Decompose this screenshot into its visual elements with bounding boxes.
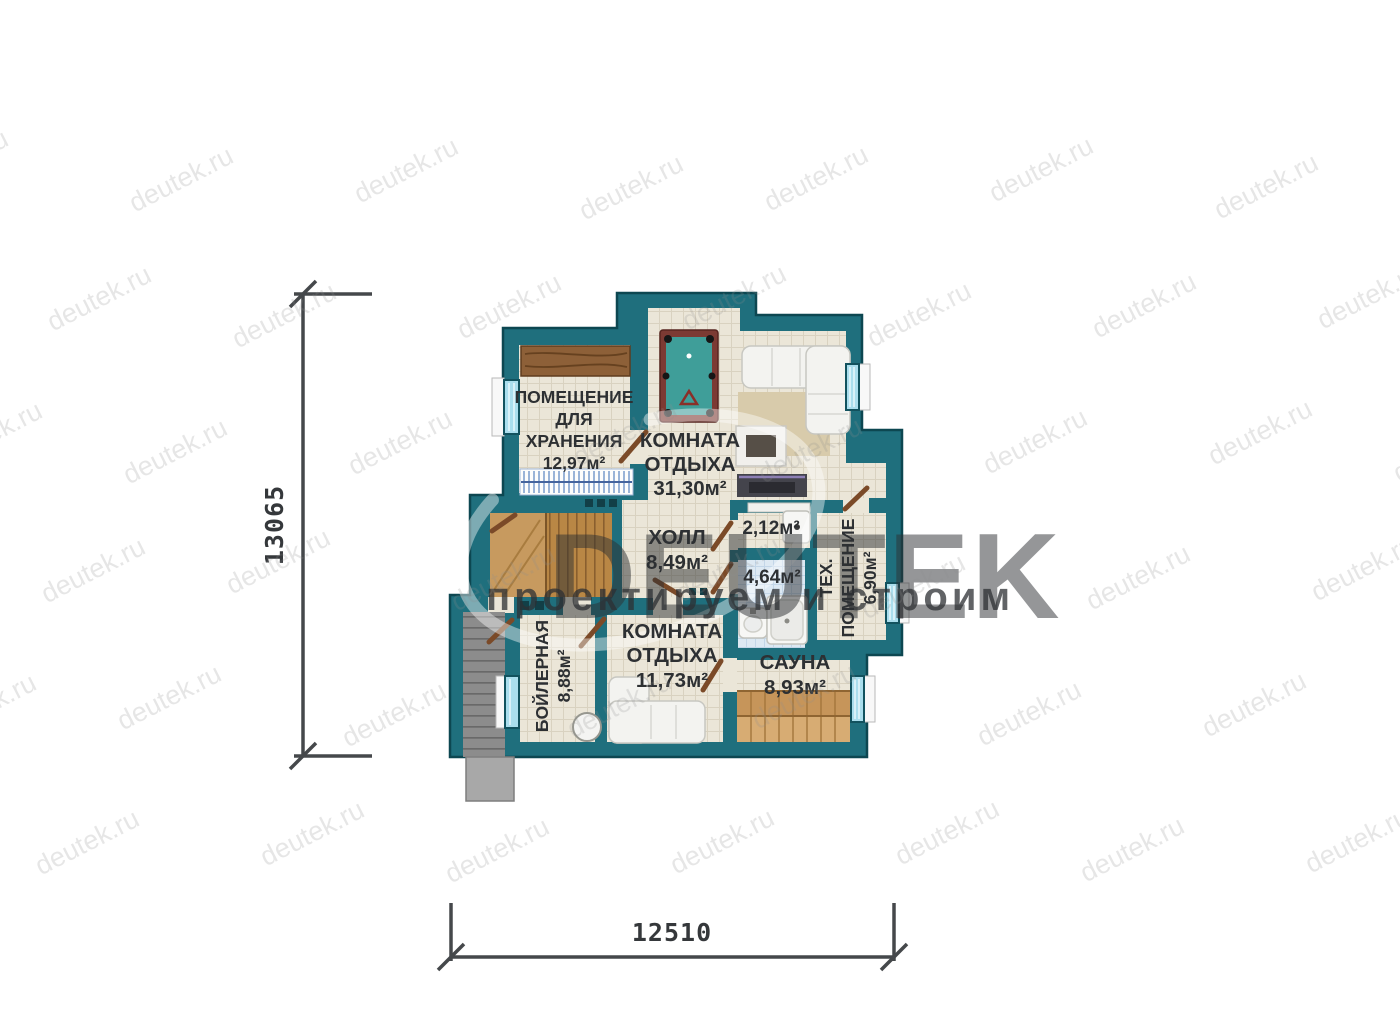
media-console: [737, 474, 807, 497]
boiler-tank: [573, 713, 601, 741]
boiler-window: [496, 676, 519, 728]
svg-text:ТЕХ.: ТЕХ.: [816, 559, 836, 598]
svg-text:ПОМЕЩЕНИЕ: ПОМЕЩЕНИЕ: [515, 387, 634, 407]
label-bath: 4,64м²: [743, 567, 800, 588]
rest1-window: [846, 364, 870, 410]
svg-text:ДЛЯ: ДЛЯ: [555, 409, 592, 429]
svg-text:ХОЛЛ: ХОЛЛ: [648, 526, 705, 549]
label-rest2: КОМНАТА ОТДЫХА 11,73м²: [622, 620, 722, 692]
sauna-window: [851, 676, 875, 722]
floor-plan-drawing: DEUTEK проектируем и строим ПОМЕЩЕНИЕ ДЛ…: [0, 0, 1400, 1015]
svg-text:11,73м²: 11,73м²: [636, 669, 708, 692]
pool-table: [660, 330, 718, 422]
dimension-horizontal-value: 12510: [632, 918, 712, 947]
svg-text:12,97м²: 12,97м²: [543, 453, 606, 473]
svg-text:6,90м²: 6,90м²: [860, 551, 880, 604]
svg-text:ОТДЫХА: ОТДЫХА: [644, 453, 735, 476]
storage-dresser: [521, 346, 630, 376]
svg-text:ОТДЫХА: ОТДЫХА: [626, 644, 717, 667]
svg-text:ПОМЕЩЕНИЕ: ПОМЕЩЕНИЕ: [838, 519, 858, 638]
floor-plan-canvas: DEUTEK проектируем и строим ПОМЕЩЕНИЕ ДЛ…: [0, 0, 1400, 1015]
svg-text:КОМНАТА: КОМНАТА: [640, 429, 740, 452]
label-wc: 2,12м²: [742, 518, 799, 539]
svg-text:САУНА: САУНА: [760, 651, 831, 674]
svg-text:31,30м²: 31,30м²: [653, 477, 726, 500]
svg-text:КОМНАТА: КОМНАТА: [622, 620, 722, 643]
dimension-vertical-value: 13065: [260, 485, 289, 565]
svg-text:ХРАНЕНИЯ: ХРАНЕНИЯ: [526, 431, 623, 451]
svg-text:8,49м²: 8,49м²: [646, 551, 708, 574]
svg-text:8,88м²: 8,88м²: [554, 649, 574, 702]
svg-text:8,93м²: 8,93м²: [764, 676, 826, 699]
svg-text:БОЙЛЕРНАЯ: БОЙЛЕРНАЯ: [531, 620, 552, 732]
dimension-vertical: [290, 281, 372, 769]
label-rest1: КОМНАТА ОТДЫХА 31,30м²: [640, 429, 740, 500]
